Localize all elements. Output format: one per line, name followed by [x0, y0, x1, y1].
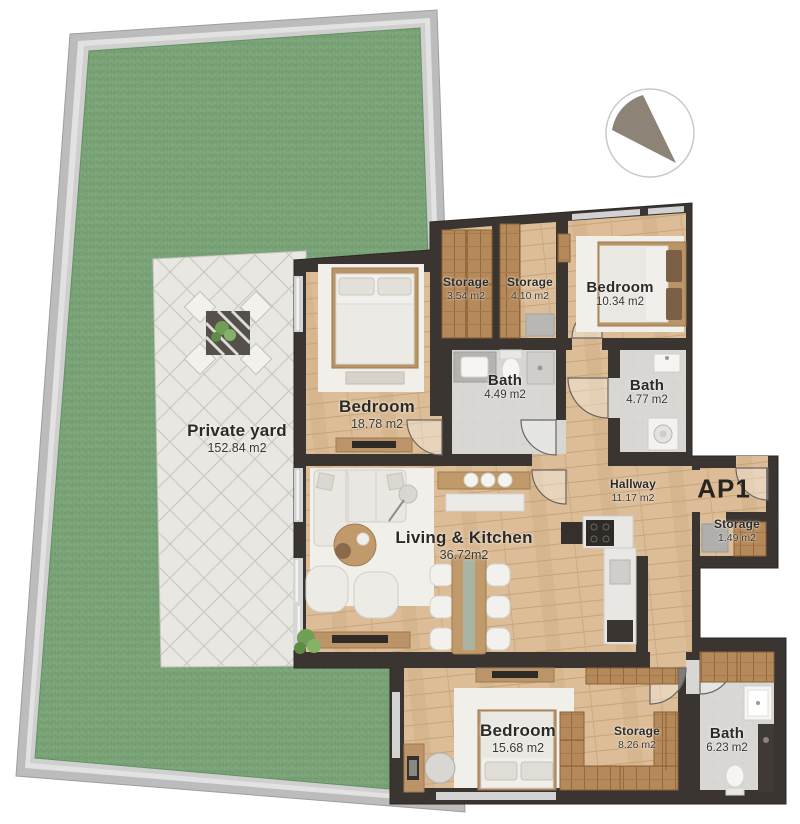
armchair-icon: [306, 566, 348, 612]
toilet-icon: [726, 765, 744, 795]
coffee-table-icon: [334, 524, 376, 566]
bench-icon: [346, 372, 404, 384]
sink-icon: [610, 560, 630, 584]
bedroom-2-furniture: [558, 234, 686, 332]
closet-icon: [558, 234, 570, 262]
floor-plan-drawing: [0, 0, 800, 824]
window: [392, 692, 400, 758]
tv-console-icon: [312, 632, 410, 648]
dining-table-icon: [430, 556, 510, 654]
bed-icon: [332, 268, 418, 368]
shower-icon: [758, 724, 774, 792]
storage-1-shelves: [442, 230, 492, 338]
bed-icon: [598, 242, 686, 326]
bed-icon: [478, 710, 556, 790]
floor-plan-canvas: Private yard 152.84 m2 Bedroom 18.78 m2 …: [0, 0, 800, 824]
unit-label-ap1: AP1: [697, 474, 751, 505]
desk-icon: [404, 744, 424, 792]
sink-icon: [461, 357, 488, 377]
cabinet-icon: [702, 524, 728, 552]
washing-machine-icon: [648, 418, 678, 450]
sink-icon: [744, 686, 772, 720]
shower-icon: [527, 352, 554, 384]
mat: [526, 314, 554, 336]
storage-3-fittings: [702, 522, 766, 556]
window: [436, 792, 556, 800]
passage-floor: [650, 652, 686, 668]
tv-console-icon: [336, 438, 412, 452]
desk-chair-icon: [425, 753, 455, 783]
north-indicator: [606, 89, 694, 177]
armchair-icon: [354, 572, 398, 618]
tv-console-icon: [476, 668, 554, 682]
toilet-icon: [500, 350, 522, 382]
